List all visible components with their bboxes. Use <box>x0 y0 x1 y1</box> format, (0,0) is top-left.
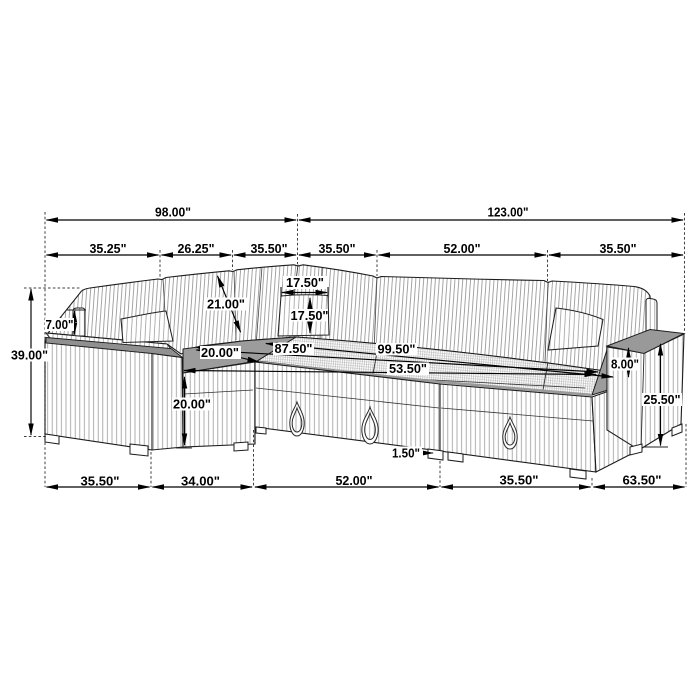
svg-text:35.50": 35.50" <box>500 474 539 488</box>
svg-text:63.50": 63.50" <box>623 474 662 488</box>
svg-text:35.50": 35.50" <box>319 242 356 256</box>
svg-text:123.00": 123.00" <box>488 206 529 220</box>
svg-text:21.00": 21.00" <box>207 298 245 312</box>
svg-text:8.00": 8.00" <box>611 358 639 372</box>
svg-text:35.25": 35.25" <box>90 242 127 256</box>
svg-text:39.00": 39.00" <box>11 349 48 363</box>
svg-text:35.50": 35.50" <box>81 475 120 489</box>
svg-text:99.50": 99.50" <box>378 343 416 357</box>
svg-text:20.00": 20.00" <box>173 398 211 412</box>
svg-text:34.00": 34.00" <box>181 475 220 489</box>
svg-text:35.50": 35.50" <box>251 242 288 256</box>
svg-text:26.25": 26.25" <box>178 242 215 256</box>
svg-text:87.50": 87.50" <box>275 342 313 356</box>
svg-text:17.50": 17.50" <box>286 276 324 290</box>
svg-text:35.50": 35.50" <box>600 242 637 256</box>
svg-text:98.00": 98.00" <box>155 206 191 220</box>
svg-text:52.00": 52.00" <box>444 242 481 256</box>
svg-text:1.50": 1.50" <box>392 447 420 461</box>
svg-text:17.50": 17.50" <box>291 309 329 323</box>
svg-text:53.50": 53.50" <box>389 362 427 376</box>
svg-text:25.50": 25.50" <box>644 393 681 407</box>
svg-text:7.00": 7.00" <box>46 318 74 332</box>
svg-text:20.00": 20.00" <box>201 346 239 360</box>
svg-text:52.00": 52.00" <box>336 474 373 488</box>
